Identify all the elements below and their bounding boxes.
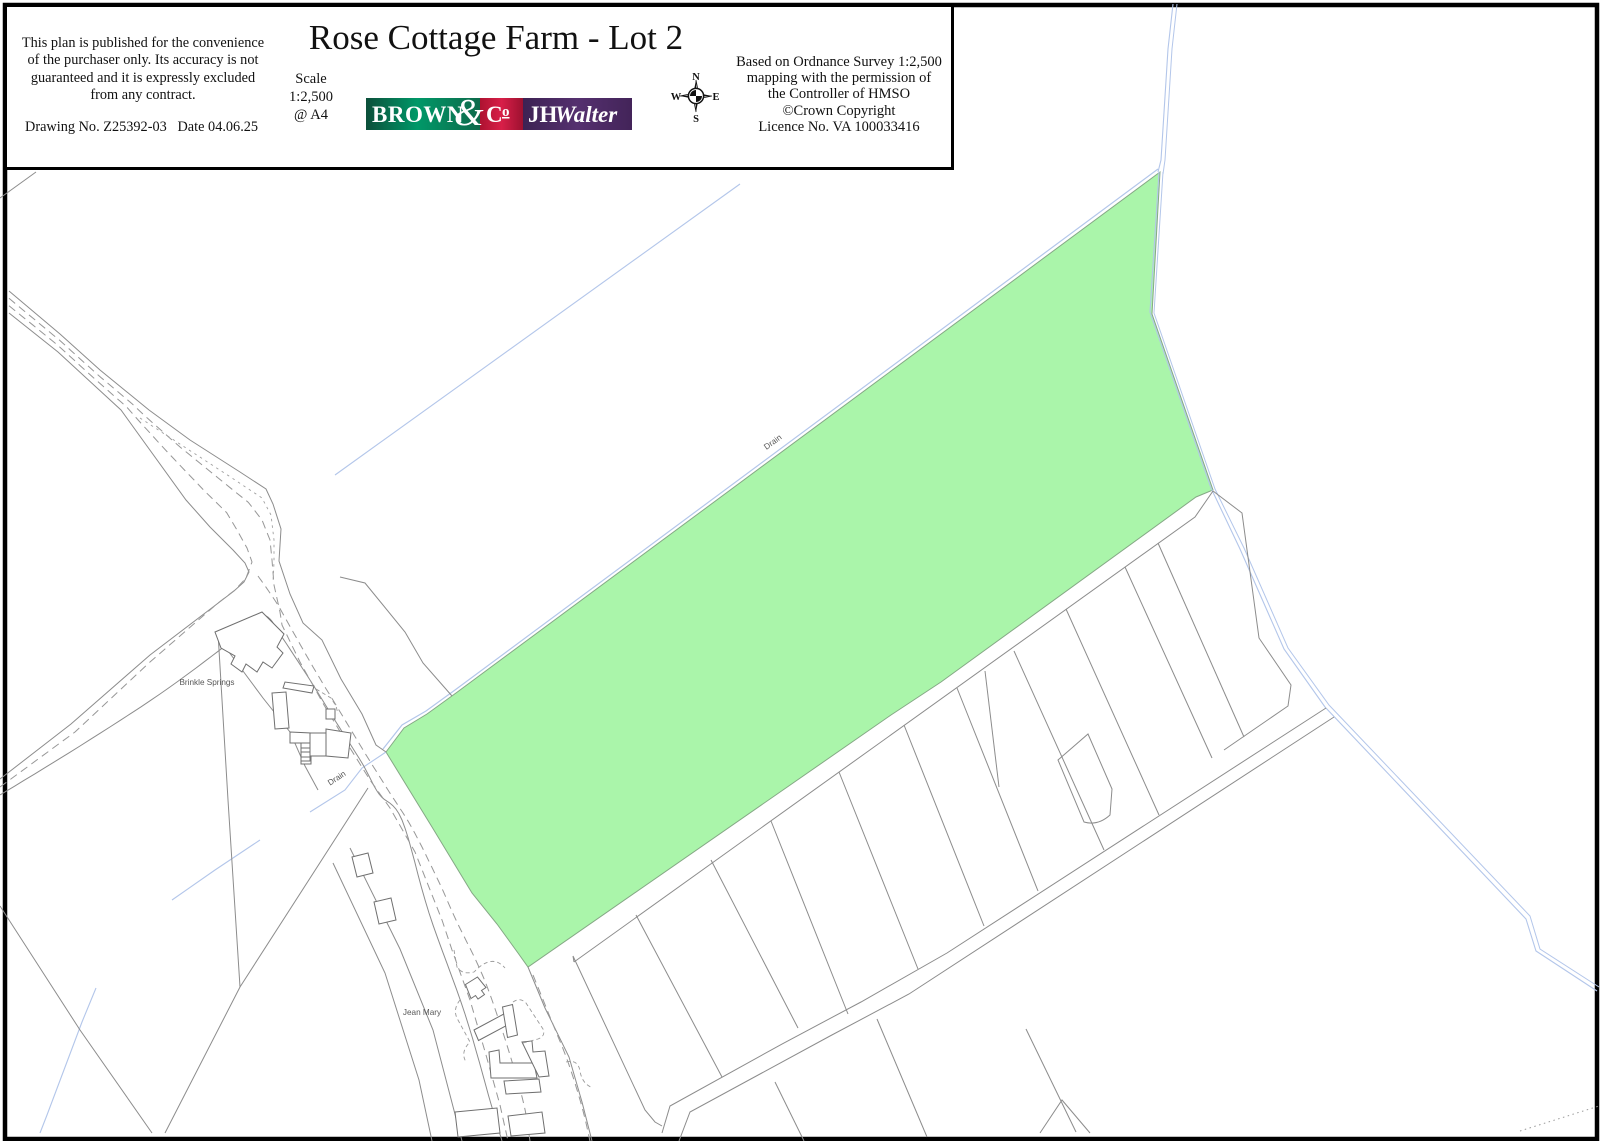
svg-text:C: C <box>486 102 503 127</box>
svg-text:Brinkle Springs: Brinkle Springs <box>179 678 234 687</box>
svg-text:JH: JH <box>528 102 558 127</box>
svg-text:&: & <box>454 98 484 130</box>
svg-text:Jean Mary: Jean Mary <box>403 1008 442 1017</box>
svg-text:BROWN: BROWN <box>372 102 464 127</box>
svg-text:Drain: Drain <box>326 769 348 787</box>
svg-text:N: N <box>692 72 700 83</box>
svg-text:W: W <box>671 92 682 103</box>
svg-text:S: S <box>693 114 699 124</box>
svg-text:Walter: Walter <box>555 102 618 127</box>
svg-text:o: o <box>502 104 510 120</box>
